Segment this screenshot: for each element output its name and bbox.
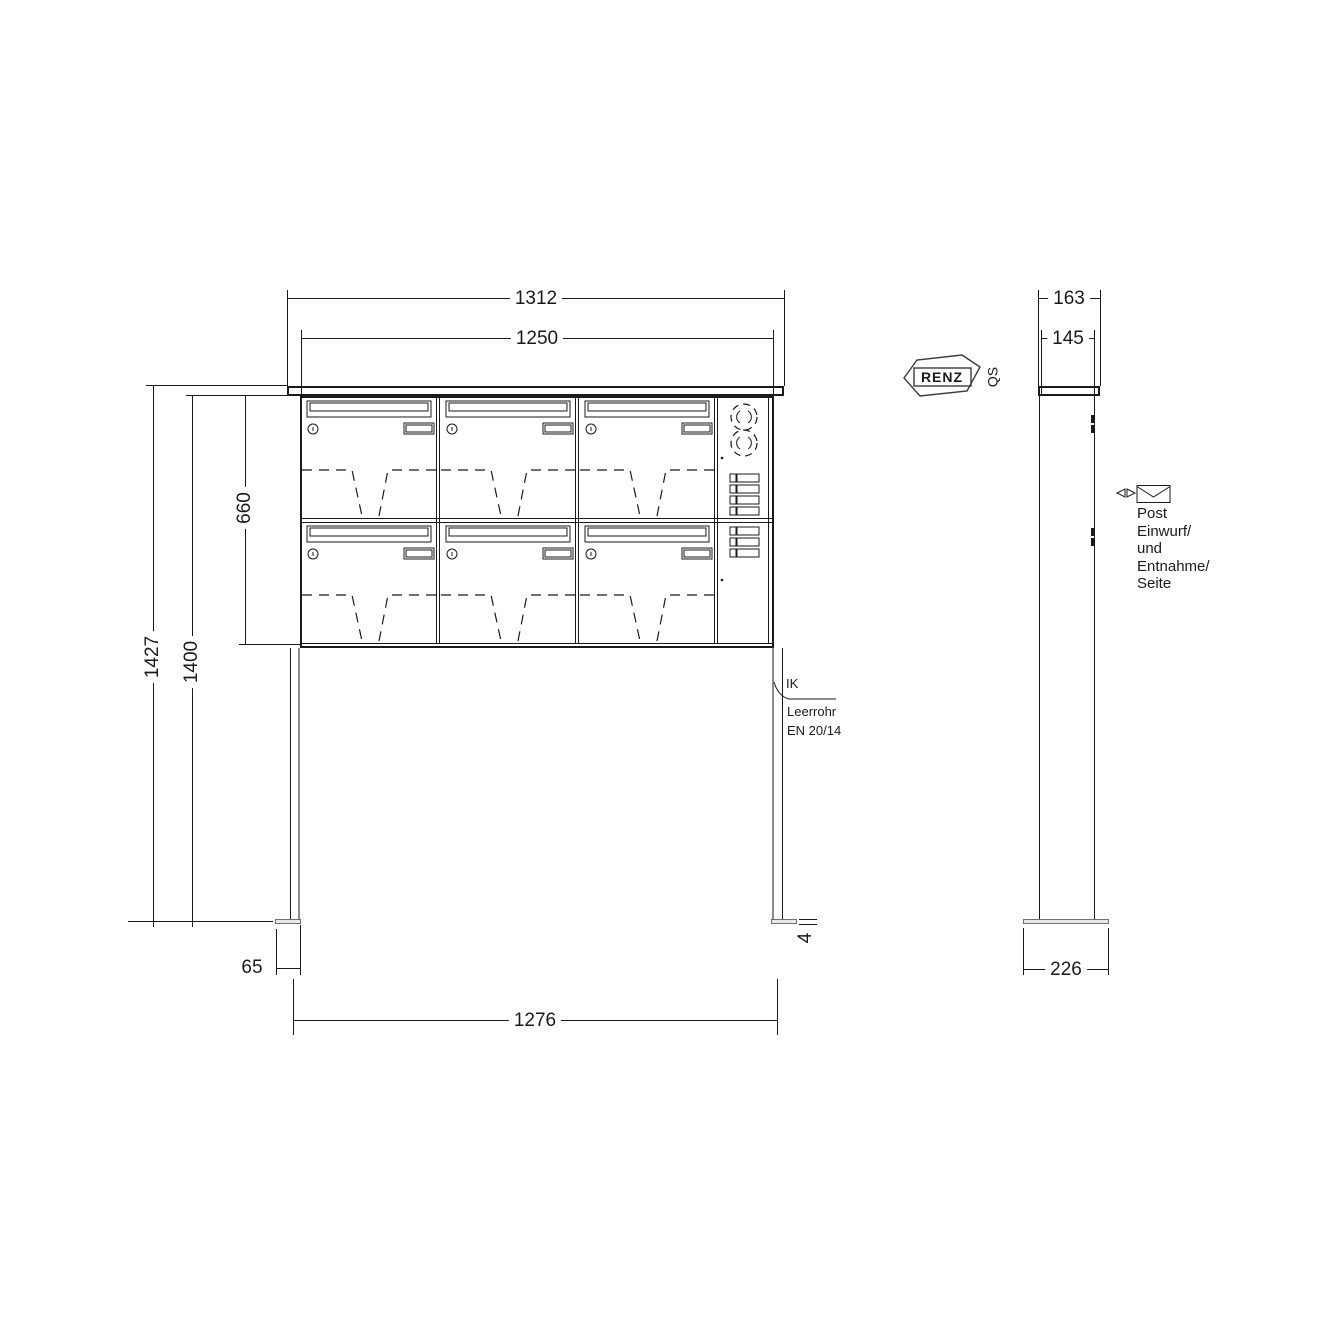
extension-line xyxy=(1108,928,1109,975)
rivet-dot xyxy=(721,457,724,460)
side-note-line: und xyxy=(1137,540,1210,558)
arrow-right-icon xyxy=(1127,489,1135,497)
bell-button xyxy=(730,474,736,482)
speaker-paren-right xyxy=(748,411,751,423)
extension-line xyxy=(186,395,300,396)
door-swing-dashed-right xyxy=(518,470,575,516)
door-swing-dashed-right xyxy=(379,595,436,641)
extension-line xyxy=(1041,330,1042,395)
side-note-line: Entnahme/ xyxy=(1137,558,1210,576)
door-swing-dashed-right xyxy=(657,470,714,516)
name-plate-inner xyxy=(545,425,571,432)
side-column-edge xyxy=(1039,396,1040,919)
front-top-plate xyxy=(287,386,784,396)
door-swing-dashed-left xyxy=(580,470,640,516)
foot-plate-left xyxy=(275,919,301,924)
bell-name-plate xyxy=(737,549,759,557)
bell-button xyxy=(730,538,736,546)
bell-name-plate xyxy=(737,496,759,504)
foot-plate-right xyxy=(771,919,797,924)
side-note-line: Post xyxy=(1137,505,1210,523)
extension-line xyxy=(784,290,785,386)
dim-anchor-span-label: 1276 xyxy=(509,1010,561,1032)
foot-plate-side xyxy=(1023,919,1109,924)
extension-line xyxy=(1023,928,1024,975)
dim-height-to-box-top-label: 1400 xyxy=(181,636,203,688)
slot-mark xyxy=(1091,528,1095,536)
side-top-plate xyxy=(1038,386,1100,396)
door-swing-dashed-right xyxy=(379,470,436,516)
mailbox-door xyxy=(302,523,436,643)
extension-line xyxy=(300,925,301,975)
bell-button xyxy=(730,507,736,515)
dim-foot-plate-depth-label: 226 xyxy=(1045,959,1087,981)
extension-line xyxy=(799,919,817,920)
door-swing-dashed-right xyxy=(518,595,575,641)
intercom-panel xyxy=(714,396,774,648)
dim-foot-plate-thickness-label: 4 xyxy=(795,928,817,949)
bell-button xyxy=(730,485,736,493)
extension-line xyxy=(301,330,302,396)
mailbox-door xyxy=(580,523,714,643)
extension-line xyxy=(773,330,774,396)
qs-label: QS xyxy=(986,365,1001,389)
extension-line xyxy=(777,979,778,1035)
cabinet-bottom-inner-line xyxy=(302,643,772,644)
name-plate-inner xyxy=(406,550,432,557)
name-plate-inner xyxy=(684,550,710,557)
renz-logo-hexagon: RENZ xyxy=(902,351,984,399)
bell-button xyxy=(730,527,736,535)
mailbox-door xyxy=(441,523,575,643)
door-swing-dashed-left xyxy=(580,595,640,641)
mailbox-door xyxy=(580,398,714,518)
technical-drawing-canvas: 1312 1250 1427 1400 660 xyxy=(0,0,1320,1320)
mailbox-door xyxy=(302,398,436,518)
name-plate-inner xyxy=(545,550,571,557)
envelope-icon xyxy=(1137,486,1170,503)
post-edge-line xyxy=(298,648,300,920)
arrow-left-icon xyxy=(1117,489,1125,497)
bell-name-plate xyxy=(737,507,759,515)
flap-slot xyxy=(588,528,706,536)
extension-line xyxy=(799,924,817,925)
dim-width-inner-label: 1250 xyxy=(511,328,563,350)
post-edge-line xyxy=(290,648,291,920)
extension-line xyxy=(1038,290,1039,386)
side-note-line: Seite xyxy=(1137,575,1210,593)
mailbox-door xyxy=(441,398,575,518)
extension-line xyxy=(287,290,288,386)
ground-line xyxy=(128,921,273,922)
speaker-icon xyxy=(731,404,757,430)
dim-width-outer-label: 1312 xyxy=(510,288,562,310)
flap-slot xyxy=(310,403,428,411)
extension-line xyxy=(1094,330,1095,395)
side-note: Post Einwurf/ und Entnahme/ Seite xyxy=(1137,505,1210,593)
slot-mark xyxy=(1091,415,1095,423)
dim-depth-outer-label: 163 xyxy=(1048,288,1090,310)
dim-height-total-label: 1427 xyxy=(142,631,164,683)
flap-slot xyxy=(310,528,428,536)
flap-slot xyxy=(449,403,567,411)
leerrohr-note-line1: IK xyxy=(786,676,798,692)
bell-button xyxy=(730,496,736,504)
slot-mark xyxy=(1091,538,1095,546)
dim-foot-plate-width-label: 65 xyxy=(236,957,267,979)
speaker-paren-left xyxy=(737,437,740,449)
flap-slot xyxy=(449,528,567,536)
door-swing-dashed-left xyxy=(441,470,501,516)
speaker-paren-right xyxy=(748,437,751,449)
leerrohr-note-line3: EN 20/14 xyxy=(787,723,841,739)
bell-name-plate xyxy=(737,538,759,546)
side-note-line: Einwurf/ xyxy=(1137,523,1210,541)
speaker-paren-left xyxy=(737,411,740,423)
name-plate-inner xyxy=(406,425,432,432)
bell-name-plate xyxy=(737,485,759,493)
bell-name-plate xyxy=(737,527,759,535)
dim-depth-inner-label: 145 xyxy=(1047,328,1089,350)
envelope-flap xyxy=(1137,487,1170,498)
leerrohr-note-line2: Leerrohr xyxy=(787,704,836,720)
bell-button xyxy=(730,549,736,557)
dimension-line xyxy=(276,968,300,969)
side-column-edge xyxy=(1094,396,1095,919)
flap-slot xyxy=(588,403,706,411)
renz-logo-label: RENZ xyxy=(921,369,963,385)
extension-line xyxy=(239,644,302,645)
door-swing-dashed-left xyxy=(441,595,501,641)
door-swing-dashed-left xyxy=(302,470,362,516)
name-plate-inner xyxy=(684,425,710,432)
leader-line xyxy=(766,676,840,704)
door-swing-dashed-right xyxy=(657,595,714,641)
leader-path xyxy=(774,682,836,699)
rivet-dot xyxy=(721,579,724,582)
bell-name-plate xyxy=(737,474,759,482)
mail-side-icons xyxy=(1117,485,1171,505)
dim-box-height-label: 660 xyxy=(234,487,256,529)
slot-mark xyxy=(1091,425,1095,433)
door-swing-dashed-left xyxy=(302,595,362,641)
extension-line xyxy=(293,979,294,1035)
speaker-icon xyxy=(731,430,757,456)
extension-line xyxy=(1100,290,1101,386)
extension-line xyxy=(146,385,287,386)
